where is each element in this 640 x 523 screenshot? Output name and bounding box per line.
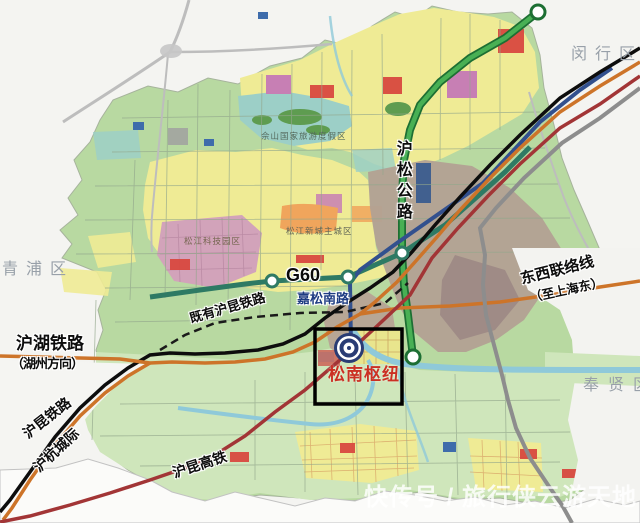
sheshan-resort-label: 佘山国家旅游度假区: [261, 132, 347, 141]
huhu-direction-label: （湖州方向）: [11, 357, 83, 371]
songjiang-newtown-label: 松江新城主城区: [286, 227, 353, 236]
g60-label: G60: [286, 266, 320, 285]
district-label-fengxian: 奉贤区: [583, 378, 640, 395]
huhu-rail-label: 沪湖铁路: [16, 335, 84, 353]
songnan-hub-label: 松南枢纽: [328, 366, 400, 384]
husong-road-label: 沪松公路: [393, 140, 410, 224]
planning-map: 闵行区 青浦区 奉贤区 沪松公路 G60 嘉松南路 既有沪昆铁路 沪湖铁路 （湖…: [0, 0, 640, 523]
district-label-minhang: 闵行区: [571, 47, 640, 64]
map-artwork: [0, 0, 640, 523]
district-label-qingpu: 青浦区: [2, 262, 74, 279]
songjiang-tech-label: 松江科技园区: [184, 237, 241, 246]
jiasong-road-label: 嘉松南路: [297, 292, 349, 306]
watermark: 快传号 / 旅行侠云游天地: [335, 485, 637, 510]
